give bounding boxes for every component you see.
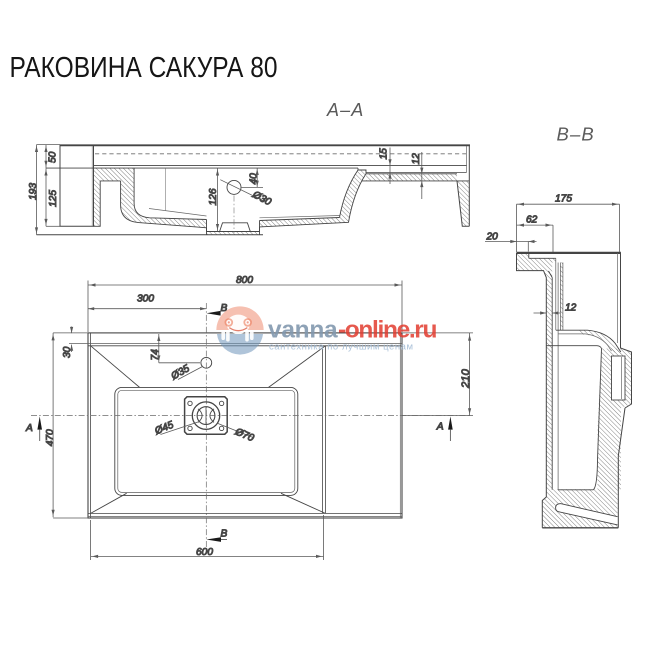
- svg-text:сантехника по лучшим ценам: сантехника по лучшим ценам: [269, 342, 414, 353]
- svg-text:А: А: [436, 422, 444, 433]
- svg-text:30: 30: [62, 346, 73, 358]
- svg-text:vanna: vanna: [268, 317, 338, 344]
- svg-text:Ø35: Ø35: [169, 363, 192, 383]
- svg-text:Ø70: Ø70: [232, 426, 255, 444]
- svg-text:15: 15: [379, 148, 390, 160]
- svg-text:126: 126: [208, 188, 219, 205]
- svg-text:50: 50: [48, 151, 59, 163]
- svg-text:600: 600: [196, 547, 213, 558]
- svg-text:12: 12: [411, 153, 422, 165]
- svg-text:А–А: А–А: [326, 100, 364, 120]
- svg-text:470: 470: [45, 429, 56, 446]
- svg-text:800: 800: [236, 275, 253, 286]
- svg-text:300: 300: [137, 294, 154, 305]
- svg-text:А: А: [25, 423, 33, 434]
- svg-text:40: 40: [248, 173, 259, 185]
- svg-text:74: 74: [150, 349, 161, 361]
- svg-text:Ø30: Ø30: [250, 189, 273, 208]
- svg-text:-online.ru: -online.ru: [338, 317, 436, 344]
- svg-text:В: В: [221, 529, 228, 540]
- svg-text:20: 20: [486, 231, 499, 242]
- svg-text:В–В: В–В: [557, 124, 595, 145]
- svg-text:62: 62: [526, 215, 538, 226]
- svg-text:193: 193: [28, 183, 39, 200]
- svg-text:125: 125: [48, 190, 59, 207]
- svg-text:12: 12: [565, 303, 577, 314]
- svg-text:РАКОВИНА САКУРА 80: РАКОВИНА САКУРА 80: [10, 52, 278, 84]
- svg-text:Ø45: Ø45: [152, 419, 175, 437]
- svg-text:210: 210: [460, 368, 472, 389]
- svg-text:175: 175: [555, 194, 572, 205]
